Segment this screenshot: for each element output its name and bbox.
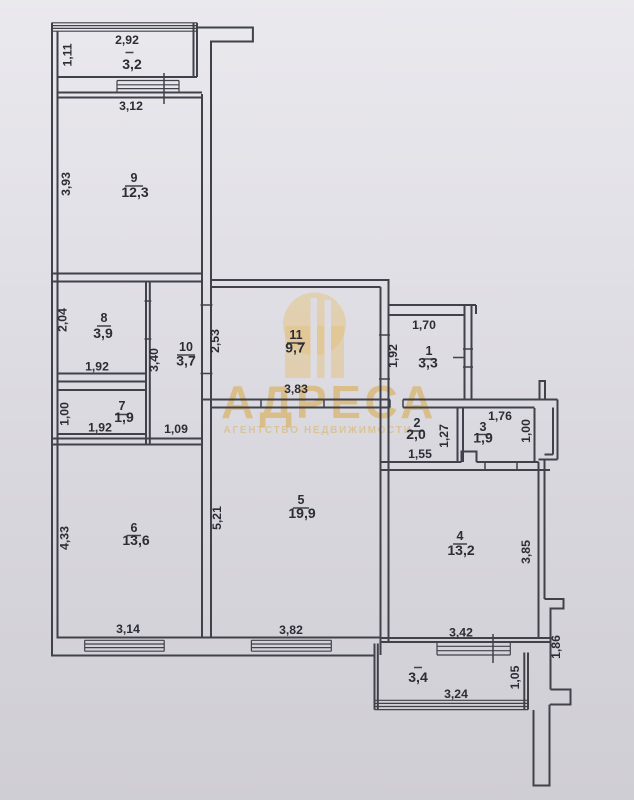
svg-text:3,93: 3,93 (59, 172, 73, 196)
svg-text:9: 9 (131, 171, 138, 185)
svg-text:3,3: 3,3 (418, 355, 438, 371)
svg-text:1,00: 1,00 (519, 419, 533, 443)
svg-text:2,04: 2,04 (56, 308, 70, 332)
svg-text:3,83: 3,83 (284, 382, 308, 396)
svg-text:3,2: 3,2 (122, 56, 142, 72)
svg-text:3,40: 3,40 (147, 348, 161, 372)
svg-text:АГЕНТСТВО НЕДВИЖИМОСТИ: АГЕНТСТВО НЕДВИЖИМОСТИ (224, 425, 413, 436)
svg-text:1,92: 1,92 (85, 360, 109, 374)
svg-text:1,09: 1,09 (164, 422, 188, 436)
svg-text:1,86: 1,86 (549, 635, 563, 659)
svg-text:9,7: 9,7 (285, 340, 305, 356)
svg-text:19,9: 19,9 (288, 505, 315, 521)
svg-text:3,24: 3,24 (444, 687, 468, 701)
svg-text:3,82: 3,82 (279, 623, 303, 637)
svg-text:4: 4 (457, 529, 464, 543)
svg-text:13,6: 13,6 (122, 532, 149, 548)
svg-text:1,11: 1,11 (61, 43, 75, 66)
svg-text:3,12: 3,12 (119, 99, 143, 113)
svg-text:1,9: 1,9 (473, 430, 493, 446)
svg-text:1,92: 1,92 (386, 344, 400, 368)
svg-text:4,33: 4,33 (58, 526, 72, 550)
svg-text:АДРЕСА: АДРЕСА (221, 376, 437, 428)
svg-text:2,92: 2,92 (115, 33, 139, 47)
svg-text:2,0: 2,0 (406, 426, 426, 442)
svg-text:1,00: 1,00 (58, 402, 72, 426)
svg-text:1,92: 1,92 (88, 421, 112, 435)
svg-text:2,53: 2,53 (208, 329, 222, 353)
svg-text:3,42: 3,42 (449, 626, 473, 640)
svg-text:8: 8 (101, 311, 108, 325)
svg-text:3,85: 3,85 (519, 540, 533, 564)
svg-text:5,21: 5,21 (210, 506, 224, 530)
svg-text:3,14: 3,14 (116, 622, 140, 636)
svg-text:3,4: 3,4 (408, 669, 428, 685)
svg-text:1,9: 1,9 (114, 409, 134, 425)
svg-text:3,7: 3,7 (176, 353, 196, 369)
svg-text:12,3: 12,3 (121, 184, 148, 200)
svg-text:1,55: 1,55 (408, 447, 432, 461)
svg-text:1,05: 1,05 (508, 665, 522, 689)
svg-text:1,70: 1,70 (412, 318, 436, 332)
svg-text:3,9: 3,9 (93, 325, 113, 341)
svg-text:1,27: 1,27 (437, 424, 451, 448)
svg-text:1,76: 1,76 (488, 409, 512, 423)
svg-text:13,2: 13,2 (447, 542, 474, 558)
